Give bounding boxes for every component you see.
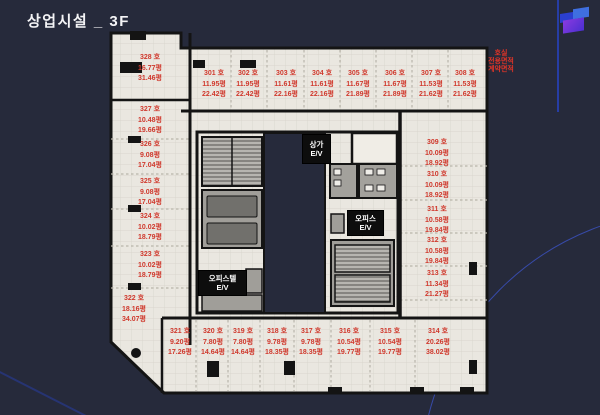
office-ev-label: 오피스E/V: [347, 210, 384, 236]
legend-line: 호실: [479, 50, 523, 58]
room-label: 321 호9.20평17.26평: [155, 327, 205, 359]
page: 상업시설 _ 3F: [0, 0, 600, 415]
room-label: 328 호16.77평31.46평: [125, 53, 175, 85]
room-label: 309 호10.09평18.92평: [412, 138, 462, 170]
room-label: 310 호10.09평18.92평: [412, 170, 462, 202]
room-label: 311 호10.58평19.84평: [412, 205, 462, 237]
room-label: 322 호18.16평34.07평: [109, 294, 159, 326]
sangga-ev-label: 상가E/V: [302, 134, 331, 164]
labels-layer: 호실 전용면적 계약면적 301 호11.95평22.42평302 호11.95…: [0, 0, 600, 415]
room-label: 312 호10.58평19.84평: [412, 236, 462, 268]
room-label: 327 호10.48평19.66평: [125, 105, 175, 137]
room-label: 308 호11.53평21.62평: [440, 69, 490, 101]
officetel-ev-label: 오피스텔E/V: [198, 270, 247, 296]
legend-line: 전용면적: [479, 58, 523, 66]
room-label: 326 호9.08평17.04평: [125, 140, 175, 172]
room-label: 314 호20.26평38.02평: [413, 327, 463, 359]
room-label: 323 호10.02평18.79평: [125, 250, 175, 282]
room-label: 313 호11.34평21.27평: [412, 269, 462, 301]
room-label: 325 호9.08평17.04평: [125, 177, 175, 209]
room-label: 324 호10.02평18.79평: [125, 212, 175, 244]
